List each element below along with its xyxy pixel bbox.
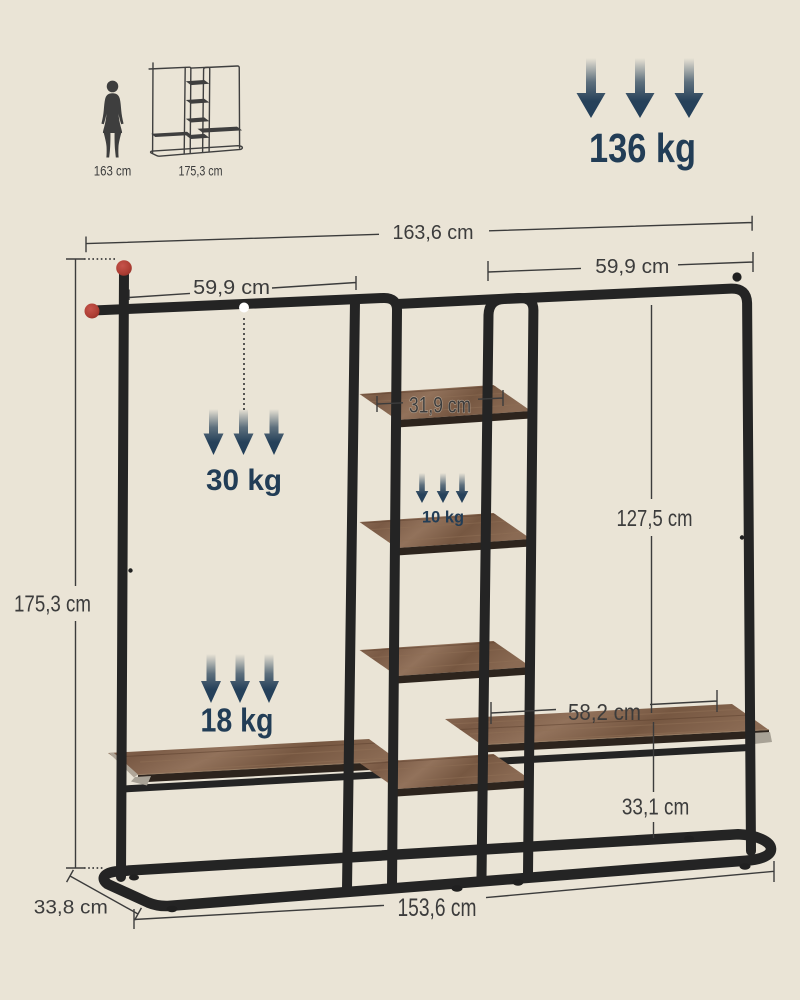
svg-text:58,2 cm: 58,2 cm bbox=[568, 699, 641, 725]
svg-text:59,9 cm: 59,9 cm bbox=[193, 277, 270, 299]
svg-text:33,8 cm: 33,8 cm bbox=[34, 897, 108, 919]
svg-text:153,6 cm: 153,6 cm bbox=[398, 894, 477, 922]
svg-text:136 kg: 136 kg bbox=[589, 125, 696, 171]
svg-text:31,9 cm: 31,9 cm bbox=[409, 392, 471, 417]
svg-text:30 kg: 30 kg bbox=[206, 464, 282, 497]
svg-text:33,1 cm: 33,1 cm bbox=[622, 794, 690, 820]
svg-text:163 cm: 163 cm bbox=[94, 164, 132, 179]
svg-text:163,6 cm: 163,6 cm bbox=[393, 222, 474, 244]
svg-text:59,9 cm: 59,9 cm bbox=[595, 255, 669, 278]
svg-text:127,5 cm: 127,5 cm bbox=[617, 505, 693, 531]
svg-text:18 kg: 18 kg bbox=[201, 702, 274, 739]
svg-text:10 kg: 10 kg bbox=[422, 508, 464, 526]
svg-text:175,3 cm: 175,3 cm bbox=[14, 591, 91, 617]
svg-text:175,3 cm: 175,3 cm bbox=[179, 164, 223, 179]
